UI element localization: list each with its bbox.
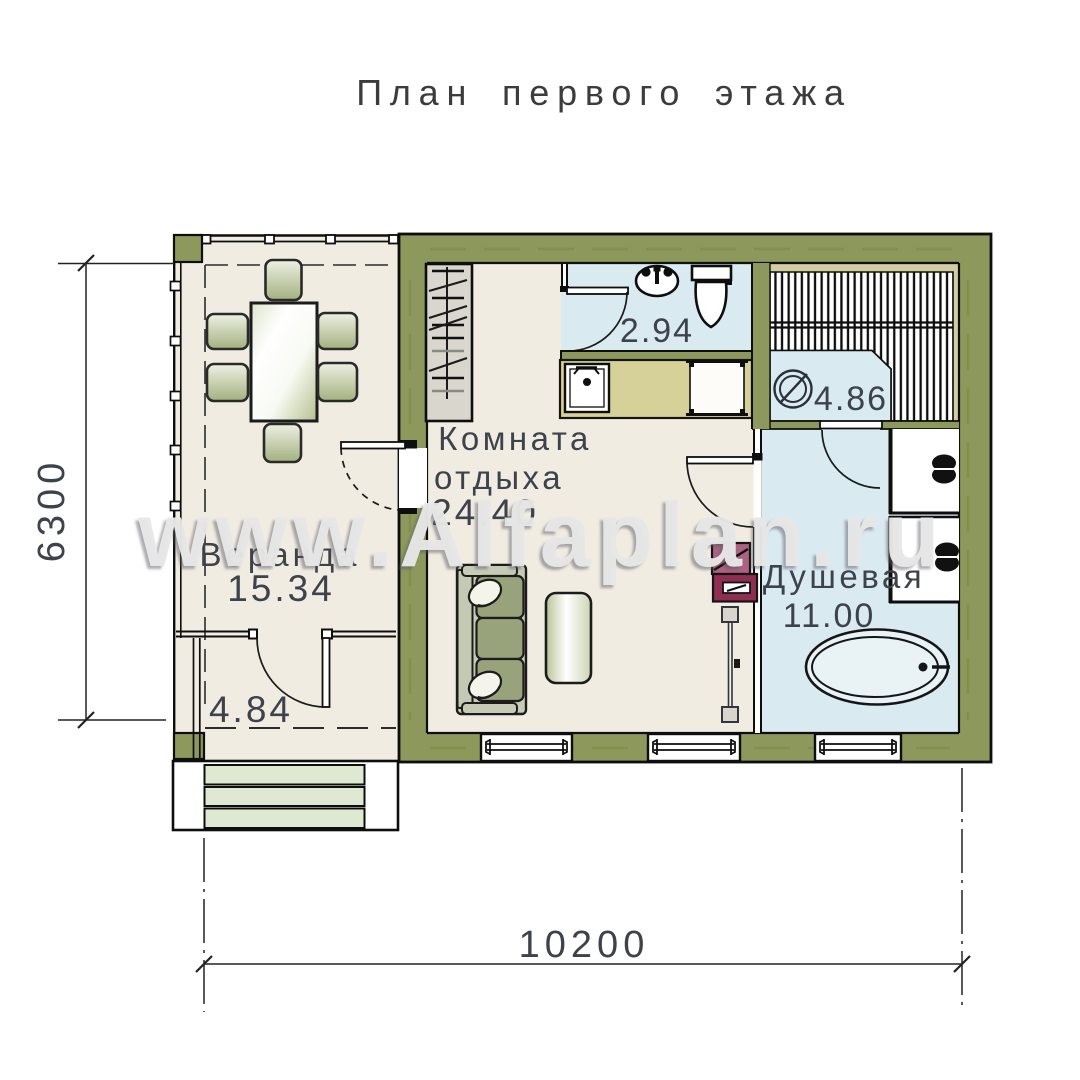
svg-text:6300: 6300	[31, 458, 73, 563]
svg-text:4.86: 4.86	[814, 380, 888, 418]
svg-text:10200: 10200	[519, 924, 650, 966]
svg-text:2.94: 2.94	[620, 312, 694, 350]
svg-text:Комната: Комната	[438, 420, 592, 457]
svg-text:План первого этажа: План первого этажа	[356, 72, 852, 113]
svg-text:4.84: 4.84	[209, 689, 293, 730]
svg-text:www.Alfaplan.ru: www.Alfaplan.ru	[137, 484, 945, 586]
